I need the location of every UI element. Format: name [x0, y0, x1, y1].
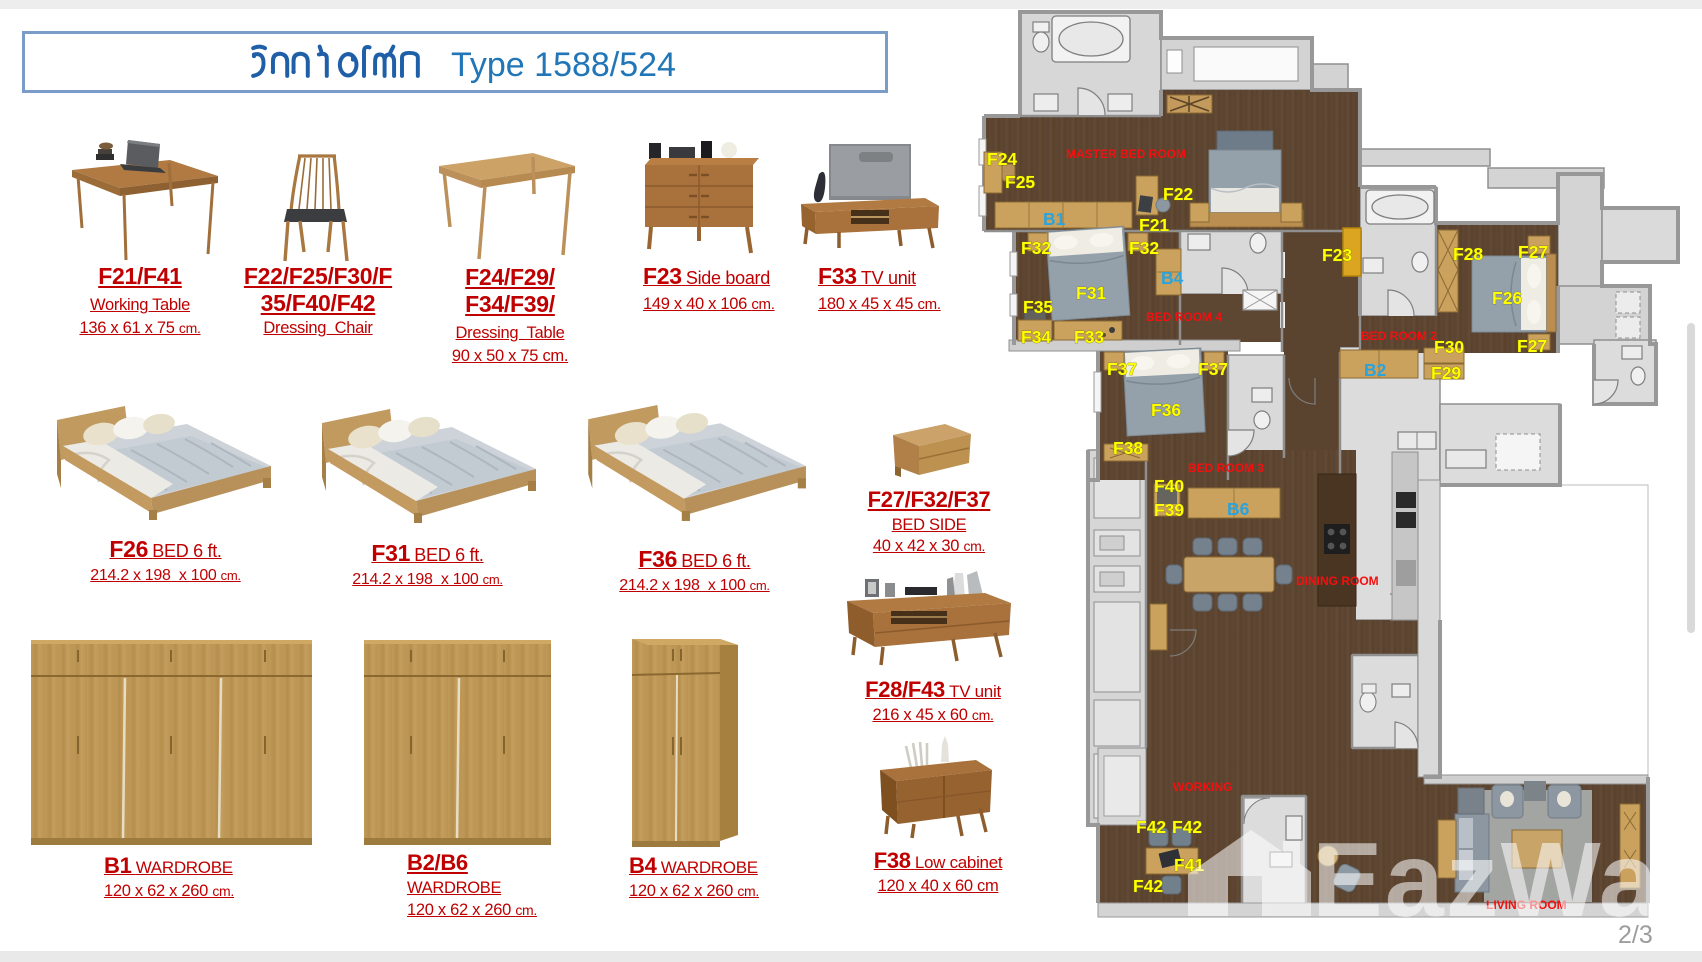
svg-text:F22: F22: [1163, 184, 1193, 204]
svg-text:F31: F31: [1076, 283, 1106, 303]
svg-text:BED ROOM 2: BED ROOM 2: [1361, 329, 1437, 343]
svg-text:F37: F37: [1107, 359, 1137, 379]
svg-text:F36: F36: [1151, 400, 1181, 420]
svg-text:B2: B2: [1364, 360, 1387, 380]
svg-text:F32: F32: [1021, 238, 1051, 258]
svg-text:F32: F32: [1129, 238, 1159, 258]
svg-text:F21: F21: [1139, 215, 1169, 235]
svg-text:B1: B1: [1043, 209, 1066, 229]
svg-text:F33: F33: [1074, 327, 1104, 347]
svg-text:F38: F38: [1113, 438, 1143, 458]
svg-text:WORKING: WORKING: [1173, 780, 1232, 794]
svg-text:F27: F27: [1518, 242, 1548, 262]
svg-text:F23: F23: [1322, 245, 1352, 265]
svg-text:F30: F30: [1434, 337, 1464, 357]
svg-text:BED ROOM 4: BED ROOM 4: [1146, 310, 1222, 324]
svg-text:BED ROOM 3: BED ROOM 3: [1188, 461, 1264, 475]
svg-text:F28: F28: [1453, 244, 1483, 264]
svg-text:F27: F27: [1517, 336, 1547, 356]
svg-text:F40: F40: [1154, 476, 1184, 496]
svg-text:F34: F34: [1021, 327, 1051, 347]
svg-text:DINING ROOM: DINING ROOM: [1296, 574, 1379, 588]
svg-text:MASTER BED ROOM: MASTER BED ROOM: [1066, 147, 1186, 161]
svg-text:B4: B4: [1161, 268, 1184, 288]
svg-text:F26: F26: [1492, 288, 1522, 308]
svg-text:F29: F29: [1431, 363, 1461, 383]
svg-text:F39: F39: [1154, 500, 1184, 520]
svg-text:F37: F37: [1198, 359, 1228, 379]
svg-text:F24: F24: [987, 149, 1017, 169]
svg-text:F35: F35: [1023, 297, 1053, 317]
svg-text:F25: F25: [1005, 172, 1035, 192]
svg-text:B6: B6: [1227, 499, 1250, 519]
